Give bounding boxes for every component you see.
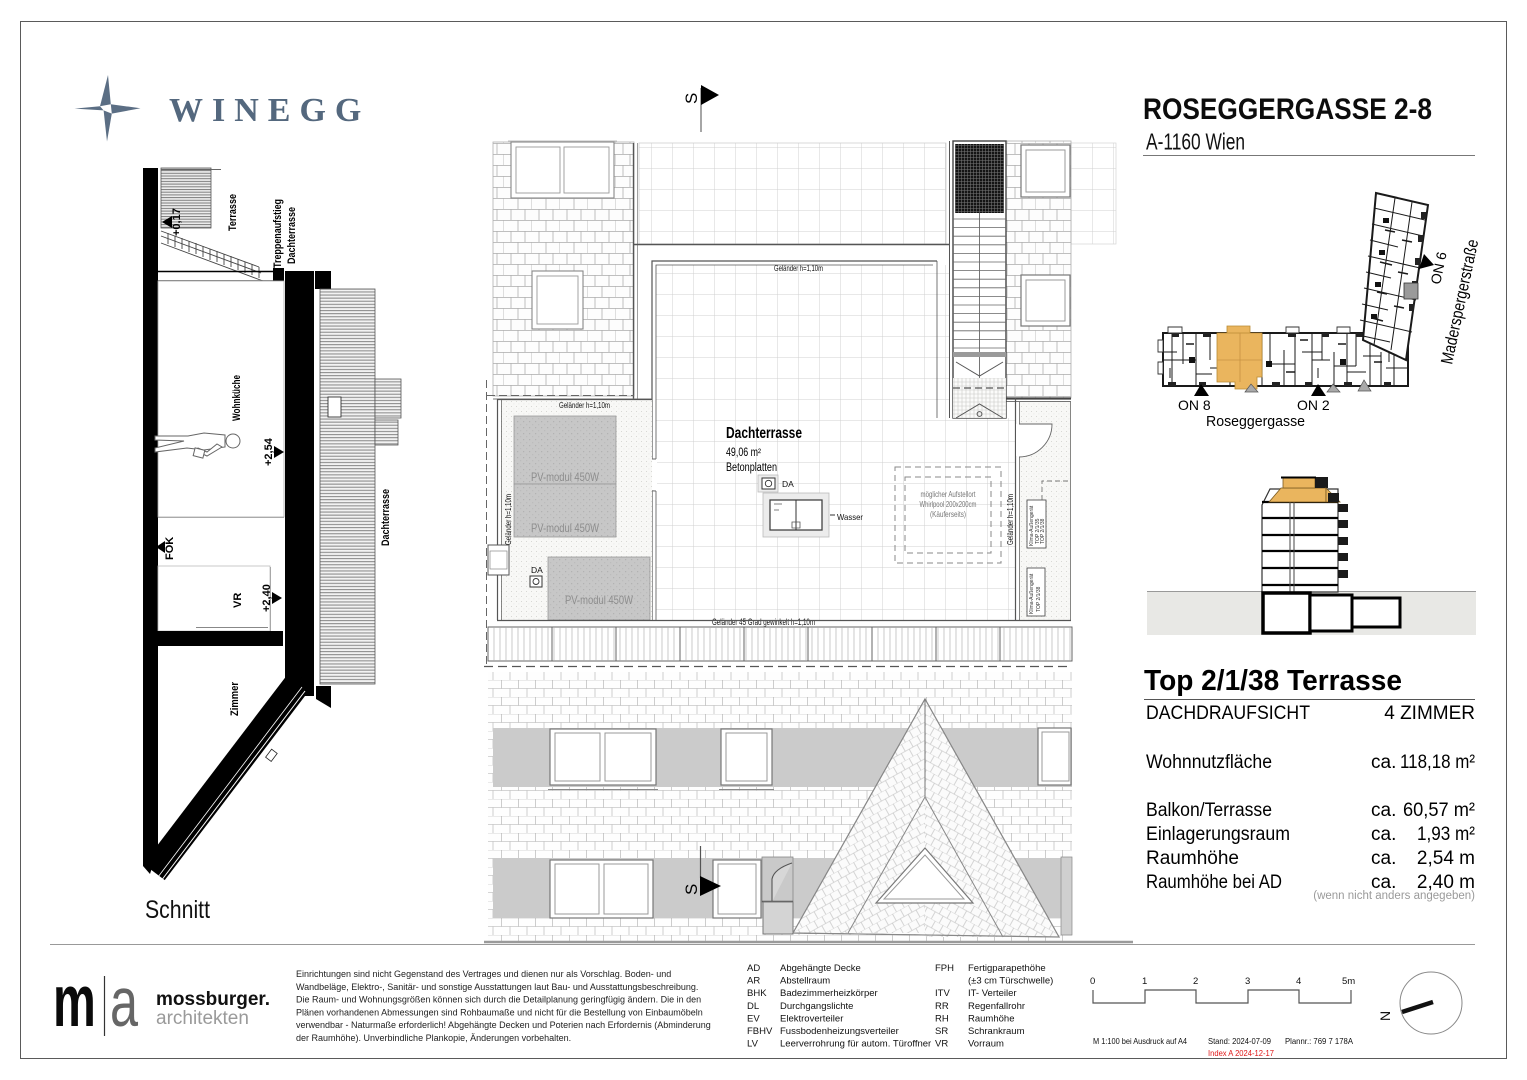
svg-text:BHK: BHK xyxy=(747,988,767,999)
svg-text:AR: AR xyxy=(747,976,760,987)
svg-text:ON 8: ON 8 xyxy=(1178,397,1211,413)
svg-text:S: S xyxy=(682,884,701,895)
svg-text:RR: RR xyxy=(935,1001,949,1012)
svg-text:ca.: ca. xyxy=(1371,800,1396,821)
svg-text:Roseggergasse: Roseggergasse xyxy=(1206,413,1305,430)
svg-text:Raumhöhe: Raumhöhe xyxy=(1146,848,1239,869)
svg-text:Geländer h=1,10m: Geländer h=1,10m xyxy=(559,400,610,410)
svg-text:S: S xyxy=(682,93,701,104)
svg-text:4: 4 xyxy=(1296,976,1301,987)
svg-text:architekten: architekten xyxy=(156,1008,249,1029)
svg-text:WINEGG: WINEGG xyxy=(169,92,370,129)
svg-text:ca.: ca. xyxy=(1371,824,1396,845)
svg-text:PV-modul 450W: PV-modul 450W xyxy=(531,521,600,535)
svg-text:Treppenaufstieg: Treppenaufstieg xyxy=(272,199,284,268)
svg-text:RH: RH xyxy=(935,1013,949,1024)
svg-text:mossburger.: mossburger. xyxy=(156,989,270,1010)
svg-text:IT- Verteiler: IT- Verteiler xyxy=(968,988,1017,999)
svg-text:Fussbodenheizungsverteiler: Fussbodenheizungsverteiler xyxy=(780,1026,899,1037)
svg-text:Vorraum: Vorraum xyxy=(968,1039,1004,1050)
svg-text:Plannr.: 769 7 178A: Plannr.: 769 7 178A xyxy=(1285,1036,1353,1046)
svg-text:Geländer h=1,10m: Geländer h=1,10m xyxy=(774,263,823,273)
svg-text:Einrichtungen sind nicht Gegen: Einrichtungen sind nicht Gegenstand des … xyxy=(296,969,671,979)
svg-text:A-1160 Wien: A-1160 Wien xyxy=(1146,129,1245,155)
svg-text:Index A 2024-12-17: Index A 2024-12-17 xyxy=(1208,1048,1274,1058)
svg-text:+0,17: +0,17 xyxy=(171,208,183,236)
svg-text:N: N xyxy=(1377,1011,1393,1021)
svg-text:Schnitt: Schnitt xyxy=(145,896,210,924)
svg-text:Badezimmerheizkörper: Badezimmerheizkörper xyxy=(780,988,878,999)
svg-text:Einlagerungsraum: Einlagerungsraum xyxy=(1146,824,1290,845)
svg-text:PV-modul 450W: PV-modul 450W xyxy=(531,470,600,484)
svg-text:Dachterrasse: Dachterrasse xyxy=(726,425,802,442)
svg-text:Elektroverteiler: Elektroverteiler xyxy=(780,1013,843,1024)
svg-text:FBHV: FBHV xyxy=(747,1026,773,1037)
svg-text:verwendbar - Naturmaße erforde: verwendbar - Naturmaße erforderlich! Abg… xyxy=(296,1020,711,1030)
svg-text:Leerverrohrung für autom. Türo: Leerverrohrung für autom. Türoffner xyxy=(780,1039,931,1050)
svg-text:(±3 cm Türschwelle): (±3 cm Türschwelle) xyxy=(968,976,1053,987)
svg-text:1: 1 xyxy=(1142,976,1147,987)
svg-text:Regenfallrohr: Regenfallrohr xyxy=(968,1001,1025,1012)
svg-text:(wenn nicht anders angegeben): (wenn nicht anders angegeben) xyxy=(1313,890,1475,902)
svg-text:Plänen vorhandenen Abmessungen: Plänen vorhandenen Abmessungen sind Rohb… xyxy=(296,1007,703,1017)
svg-text:ROSEGGERGASSE 2-8: ROSEGGERGASSE 2-8 xyxy=(1143,93,1432,126)
svg-text:5m: 5m xyxy=(1342,976,1355,987)
svg-text:Terrasse: Terrasse xyxy=(227,194,239,231)
svg-text:Balkon/Terrasse: Balkon/Terrasse xyxy=(1146,800,1272,821)
svg-text:a: a xyxy=(110,963,138,1041)
svg-text:3: 3 xyxy=(1245,976,1250,987)
svg-text:DA: DA xyxy=(782,479,794,489)
svg-text:Die Raum- und Wohnungsgrößen k: Die Raum- und Wohnungsgrößen können sich… xyxy=(296,995,701,1005)
svg-text:AD: AD xyxy=(747,963,760,974)
svg-text:Betonplatten: Betonplatten xyxy=(726,462,777,474)
svg-text:Wohnnutzfläche: Wohnnutzfläche xyxy=(1146,752,1272,773)
svg-text:SR: SR xyxy=(935,1026,948,1037)
svg-text:Wohnküche: Wohnküche xyxy=(231,375,243,421)
svg-text:FPH: FPH xyxy=(935,963,954,974)
svg-text:ca.: ca. xyxy=(1371,752,1396,773)
svg-text:Geländer h=1,10m: Geländer h=1,10m xyxy=(503,494,513,545)
svg-text:2: 2 xyxy=(1193,976,1198,987)
svg-text:TOP 2/1/38: TOP 2/1/38 xyxy=(1036,586,1042,612)
svg-text:EV: EV xyxy=(747,1013,760,1024)
svg-text:FOK: FOK xyxy=(164,537,176,560)
svg-text:2,54 m: 2,54 m xyxy=(1417,848,1475,869)
svg-text:4 ZIMMER: 4 ZIMMER xyxy=(1384,703,1475,724)
svg-text:0: 0 xyxy=(1090,976,1095,987)
svg-text:VR: VR xyxy=(935,1039,948,1050)
svg-text:ITV: ITV xyxy=(935,988,950,999)
svg-text:der Raumhöhe). Unverbindliche: der Raumhöhe). Unverbindliche Plankopie,… xyxy=(296,1033,571,1043)
svg-text:1,93 m²: 1,93 m² xyxy=(1417,824,1475,845)
svg-text:+2,40: +2,40 xyxy=(261,584,273,612)
svg-text:ca.: ca. xyxy=(1371,848,1396,869)
svg-text:DL: DL xyxy=(747,1001,759,1012)
svg-text:Top 2/1/38 Terrasse: Top 2/1/38 Terrasse xyxy=(1144,665,1402,697)
svg-text:Dachterrasse: Dachterrasse xyxy=(286,207,298,264)
svg-text:Raumhöhe: Raumhöhe xyxy=(968,1013,1014,1024)
svg-text:Zimmer: Zimmer xyxy=(229,681,241,716)
svg-text:TOP 2/1/38: TOP 2/1/38 xyxy=(1040,518,1046,544)
svg-text:Wasser: Wasser xyxy=(837,512,863,522)
svg-text:118,18 m²: 118,18 m² xyxy=(1400,752,1475,773)
svg-text:Abgehängte Decke: Abgehängte Decke xyxy=(780,963,861,974)
svg-text:möglicher Aufstellort: möglicher Aufstellort xyxy=(921,489,976,499)
svg-text:Fertigparapethöhe: Fertigparapethöhe xyxy=(968,963,1046,974)
svg-text:Wandbeläge, Elektro-, Sanitär-: Wandbeläge, Elektro-, Sanitär- und sonst… xyxy=(296,982,698,992)
svg-text:PV-modul 450W: PV-modul 450W xyxy=(565,593,634,607)
svg-text:DACHDRAUFSICHT: DACHDRAUFSICHT xyxy=(1146,703,1310,724)
svg-text:LV: LV xyxy=(747,1039,759,1050)
svg-text:Geländer h=1,10m: Geländer h=1,10m xyxy=(1005,494,1015,545)
svg-text:+2,54: +2,54 xyxy=(263,437,275,466)
svg-text:Durchgangslichte: Durchgangslichte xyxy=(780,1001,853,1012)
svg-text:Geländer 45 Grad gewinkelt h=: Geländer 45 Grad gewinkelt h=1,10m xyxy=(712,617,815,627)
svg-text:Abstellraum: Abstellraum xyxy=(780,976,830,987)
svg-text:DA: DA xyxy=(531,565,543,575)
svg-text:Klima-Außengerät: Klima-Außengerät xyxy=(1029,573,1035,614)
svg-text:(Käuferseits): (Käuferseits) xyxy=(930,509,966,519)
svg-text:ON 2: ON 2 xyxy=(1297,397,1330,413)
svg-text:m: m xyxy=(53,961,96,1042)
svg-text:Dachterrasse: Dachterrasse xyxy=(380,489,392,546)
svg-text:Stand: 2024-07-09: Stand: 2024-07-09 xyxy=(1208,1036,1271,1046)
svg-text:60,57 m²: 60,57 m² xyxy=(1403,800,1475,821)
svg-text:Whirlpool 200x200cm: Whirlpool 200x200cm xyxy=(920,499,977,509)
svg-text:M 1:100 bei Ausdruck auf A4: M 1:100 bei Ausdruck auf A4 xyxy=(1093,1036,1187,1046)
svg-text:49,06 m²: 49,06 m² xyxy=(726,447,761,459)
svg-text:VR: VR xyxy=(232,593,244,608)
svg-text:Raumhöhe bei AD: Raumhöhe bei AD xyxy=(1146,872,1282,893)
svg-text:Schrankraum: Schrankraum xyxy=(968,1026,1025,1037)
